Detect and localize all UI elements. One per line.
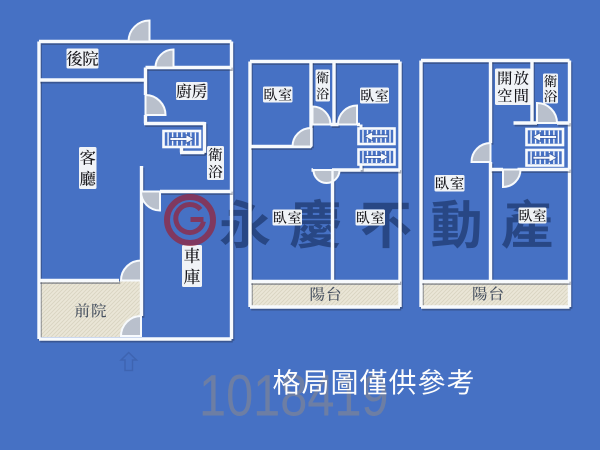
svg-text:1018419: 1018419	[199, 365, 389, 429]
